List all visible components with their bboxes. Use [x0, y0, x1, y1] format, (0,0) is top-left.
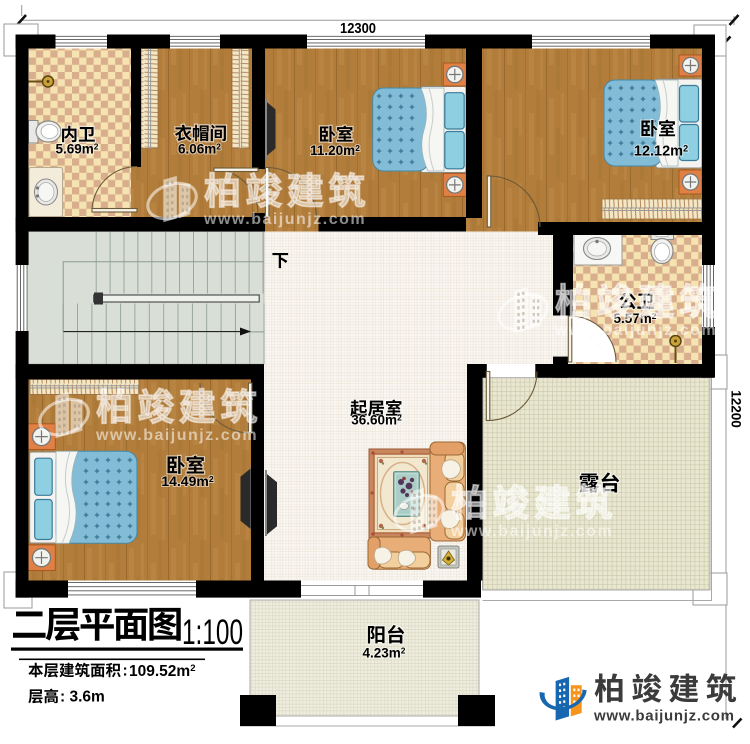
svg-text:12.12m2: 12.12m2: [634, 144, 688, 160]
svg-text:12200: 12200: [729, 390, 744, 428]
svg-text:6.06m2: 6.06m2: [178, 142, 221, 157]
svg-text:www.baijunjz.com: www.baijunjz.com: [450, 523, 613, 540]
svg-text:36.60m2: 36.60m2: [351, 413, 402, 428]
svg-text:1:100: 1:100: [182, 613, 243, 652]
svg-text:109.52m2: 109.52m2: [129, 663, 196, 680]
svg-text:11.20m2: 11.20m2: [310, 143, 360, 158]
svg-text:: 3.6m: : 3.6m: [60, 689, 105, 706]
svg-text::: :: [123, 663, 128, 680]
svg-text:www.baijunjz.com: www.baijunjz.com: [593, 708, 735, 725]
svg-text:5.69m2: 5.69m2: [56, 142, 99, 157]
svg-text:14.49m2: 14.49m2: [161, 473, 213, 489]
svg-text:www.baijunjz.com: www.baijunjz.com: [203, 211, 366, 228]
svg-text:www.baijunjz.com: www.baijunjz.com: [554, 322, 717, 339]
svg-text:4.23m2: 4.23m2: [363, 646, 406, 661]
svg-text:www.baijunjz.com: www.baijunjz.com: [95, 427, 258, 444]
